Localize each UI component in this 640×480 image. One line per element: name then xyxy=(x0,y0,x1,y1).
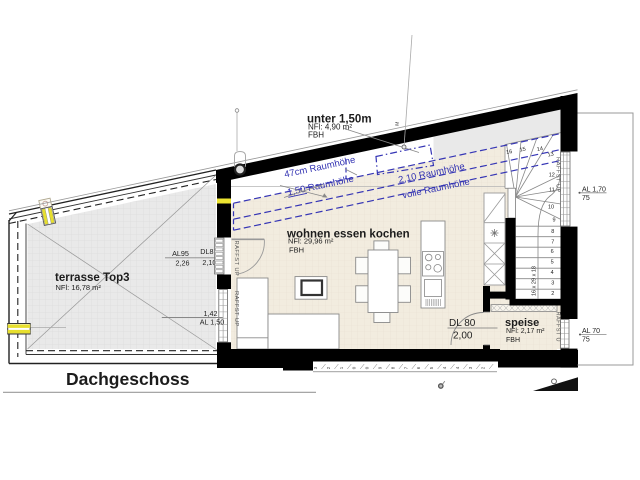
svg-text:3: 3 xyxy=(468,366,473,369)
svg-text:3: 3 xyxy=(551,281,554,287)
svg-text:15: 15 xyxy=(519,146,526,153)
svg-text:9: 9 xyxy=(552,218,555,224)
svg-text:11: 11 xyxy=(549,188,555,194)
svg-text:9: 9 xyxy=(378,366,383,369)
svg-text:RAFFST UP: RAFFST UP xyxy=(233,291,239,327)
svg-text:AL 1,70: AL 1,70 xyxy=(582,187,606,194)
svg-text:RAFFST U: RAFFST U xyxy=(555,312,561,342)
svg-text:8: 8 xyxy=(390,366,395,369)
svg-text:12: 12 xyxy=(549,173,555,179)
svg-text:RAFFST UP: RAFFST UP xyxy=(555,157,561,193)
svg-text:DL 80: DL 80 xyxy=(449,318,476,329)
svg-text:16 x 29 x 18: 16 x 29 x 18 xyxy=(532,266,538,296)
svg-text:4: 4 xyxy=(442,366,447,369)
svg-text:AL 70: AL 70 xyxy=(582,328,600,335)
svg-text:FBH: FBH xyxy=(289,246,304,255)
svg-text:RAFFST UP: RAFFST UP xyxy=(233,241,239,277)
svg-text:10: 10 xyxy=(548,205,554,211)
svg-text:NFl: 2,17 m²: NFl: 2,17 m² xyxy=(506,328,545,335)
svg-text:2: 2 xyxy=(326,366,331,369)
svg-text:2: 2 xyxy=(551,291,554,297)
svg-text:FBH: FBH xyxy=(308,131,324,140)
svg-text:2,00: 2,00 xyxy=(453,330,473,341)
svg-text:4: 4 xyxy=(455,366,460,369)
svg-text:5: 5 xyxy=(551,260,554,266)
svg-text:75: 75 xyxy=(582,337,590,344)
svg-text:FBH: FBH xyxy=(506,337,520,344)
svg-text:14: 14 xyxy=(536,146,543,153)
svg-text:AL95: AL95 xyxy=(172,249,189,258)
svg-text:7: 7 xyxy=(403,366,408,369)
svg-text:3: 3 xyxy=(313,366,318,369)
svg-text:0: 0 xyxy=(352,366,357,369)
svg-text:6: 6 xyxy=(416,366,421,369)
svg-text:1: 1 xyxy=(339,366,344,369)
svg-text:0: 0 xyxy=(365,366,370,369)
svg-text:NFl: 29,96 m²: NFl: 29,96 m² xyxy=(288,237,334,246)
svg-text:2,26: 2,26 xyxy=(176,259,190,268)
svg-text:16: 16 xyxy=(506,149,513,156)
svg-text:NFl: 16,78 m²: NFl: 16,78 m² xyxy=(56,283,102,292)
svg-text:M: M xyxy=(395,121,401,126)
svg-text:75: 75 xyxy=(582,195,590,202)
svg-text:7: 7 xyxy=(551,240,554,246)
svg-text:8: 8 xyxy=(551,229,554,235)
svg-text:2: 2 xyxy=(481,366,486,369)
svg-text:AL 1,50: AL 1,50 xyxy=(200,318,225,327)
svg-text:Dachgeschoss: Dachgeschoss xyxy=(66,369,190,389)
svg-text:6: 6 xyxy=(551,249,554,255)
svg-text:4: 4 xyxy=(551,270,554,276)
svg-text:5: 5 xyxy=(429,366,434,369)
